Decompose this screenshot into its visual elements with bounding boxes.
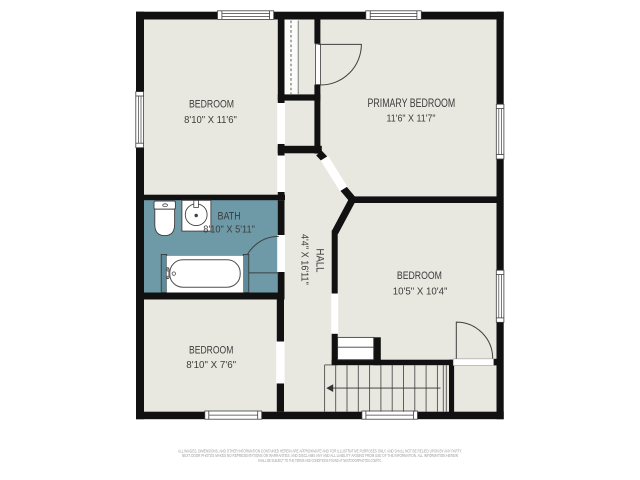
svg-text:BATH: BATH: [218, 211, 241, 223]
svg-text:BEDROOM: BEDROOM: [397, 270, 442, 282]
svg-text:ALL IMAGES, DIMENSIONS, AND OT: ALL IMAGES, DIMENSIONS, AND OTHER INFORM…: [178, 448, 462, 453]
svg-text:4'4" X 16'11": 4'4" X 16'11": [299, 234, 311, 285]
svg-text:BEDROOM: BEDROOM: [189, 345, 233, 357]
svg-text:BEDROOM: BEDROOM: [189, 99, 234, 111]
svg-text:8'10" X 7'6": 8'10" X 7'6": [186, 359, 236, 371]
svg-text:HALL: HALL: [314, 249, 326, 273]
svg-text:11'6" X 11'7": 11'6" X 11'7": [387, 113, 436, 125]
svg-text:SHALL BE SUBJECT TO THE TERMS: SHALL BE SUBJECT TO THE TERMS AND CONDIT…: [258, 458, 382, 463]
svg-text:PRIMARY BEDROOM: PRIMARY BEDROOM: [368, 98, 456, 110]
svg-text:8'10" X 11'6": 8'10" X 11'6": [184, 114, 237, 126]
svg-text:NEXT DOOR PHOTOS MAKES NO REPR: NEXT DOOR PHOTOS MAKES NO REPRESENTATION…: [182, 453, 458, 458]
svg-text:10'5" X 10'4": 10'5" X 10'4": [393, 285, 448, 297]
svg-text:8'10" X 5'11": 8'10" X 5'11": [203, 224, 255, 236]
